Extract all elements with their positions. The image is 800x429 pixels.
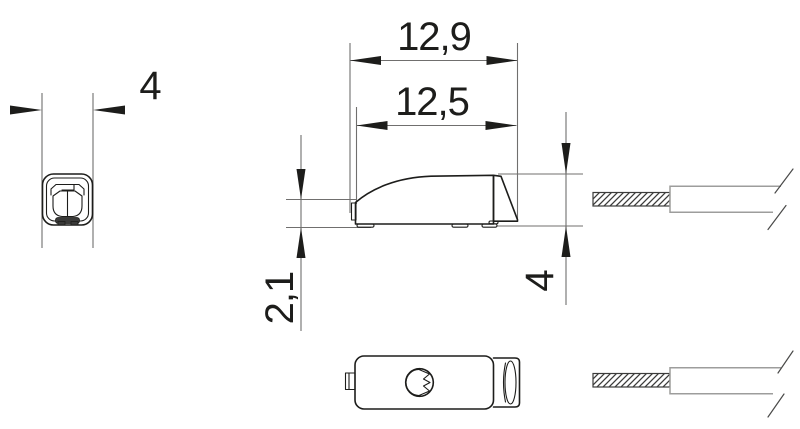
module-body-top [355,356,494,409]
mounting-foot [482,224,497,227]
front-view: 4 [10,64,161,248]
side-view: 12,9 12,5 2,1 4 [258,15,583,331]
dim-label-front-edge-height: 2,1 [258,272,302,325]
cable-insulation [670,186,781,212]
dim-label-overall-length: 12,9 [397,15,471,59]
dimension-drawing: 4 12,9 12,5 [0,0,800,429]
dimension-front-width: 4 [10,64,161,248]
dimension-rear-height: 4 [497,112,583,305]
break-line [775,169,793,193]
lens-reflector-detail [419,370,430,396]
solder-pad [71,222,78,226]
mounting-foot [357,224,374,227]
dim-arrow-right-icon [10,106,42,115]
cap-end-ellipse [505,361,516,404]
bare-wire-hatched [593,193,670,207]
lens-notch [62,185,74,190]
top-view [346,356,520,409]
dim-label-rear-height: 4 [518,270,562,292]
dim-arrow-right-icon [486,121,517,130]
module-body [356,175,494,224]
dim-label-front-width: 4 [139,64,161,108]
lens-inner-arc [406,370,419,396]
dim-arrow-left-icon [93,106,125,115]
bare-wire-hatched [593,374,670,388]
module-rear-cap [494,175,518,221]
cable-side-view [593,169,793,230]
cable-insulation [670,368,781,394]
break-line [768,394,784,417]
dim-arrow-left-icon [350,56,381,65]
dim-label-body-length: 12,5 [395,80,469,124]
dimension-body-length: 12,5 [357,80,517,204]
dim-arrow-up-icon [562,226,571,257]
solder-pad [58,222,65,226]
mounting-foot [452,224,468,227]
dim-arrow-down-icon [297,169,306,200]
technical-drawing-canvas: 4 12,9 12,5 [0,0,800,429]
dim-arrow-down-icon [562,143,571,174]
module-side-profile [352,175,518,227]
dim-arrow-up-icon [297,228,306,259]
dimension-front-edge-height: 2,1 [258,135,371,331]
dim-arrow-right-icon [487,56,518,65]
cable-top-view [593,351,793,417]
dim-arrow-left-icon [357,121,388,130]
front-housing [43,174,93,225]
front-tab [346,373,356,390]
break-line [778,351,793,373]
